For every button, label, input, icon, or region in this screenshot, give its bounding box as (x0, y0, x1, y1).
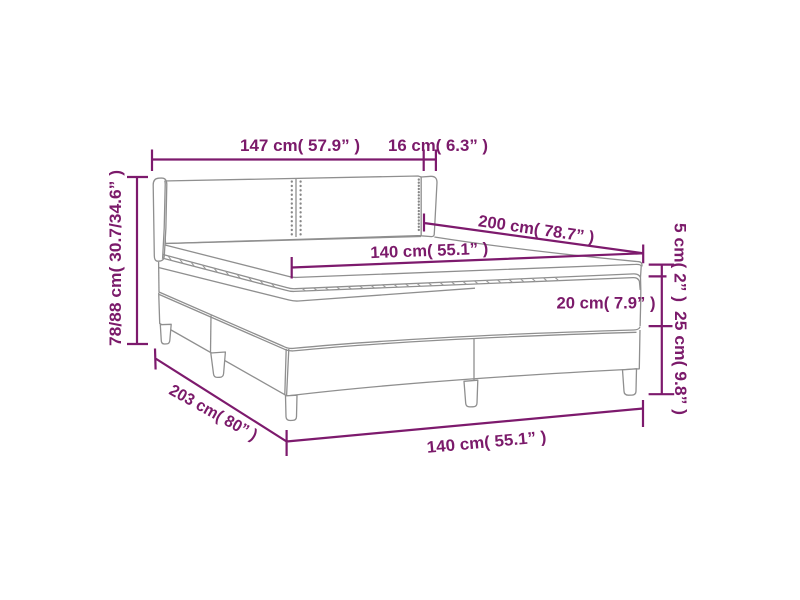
svg-text:140 cm( 55.1” ): 140 cm( 55.1” ) (370, 240, 489, 262)
svg-text:140 cm( 55.1” ): 140 cm( 55.1” ) (426, 428, 547, 457)
svg-text:25 cm( 9.8” ): 25 cm( 9.8” ) (671, 311, 689, 415)
svg-text:203 cm( 80” ): 203 cm( 80” ) (166, 381, 260, 444)
svg-text:147 cm( 57.9” ): 147 cm( 57.9” ) (240, 137, 360, 155)
svg-text:5 cm( 2” ): 5 cm( 2” ) (671, 223, 689, 302)
svg-text:78/88 cm( 30.7/34.6” ): 78/88 cm( 30.7/34.6” ) (107, 170, 125, 346)
svg-text:200 cm( 78.7” ): 200 cm( 78.7” ) (477, 212, 595, 247)
svg-text:20 cm( 7.9” ): 20 cm( 7.9” ) (557, 295, 656, 313)
svg-text:16 cm( 6.3” ): 16 cm( 6.3” ) (388, 137, 488, 155)
